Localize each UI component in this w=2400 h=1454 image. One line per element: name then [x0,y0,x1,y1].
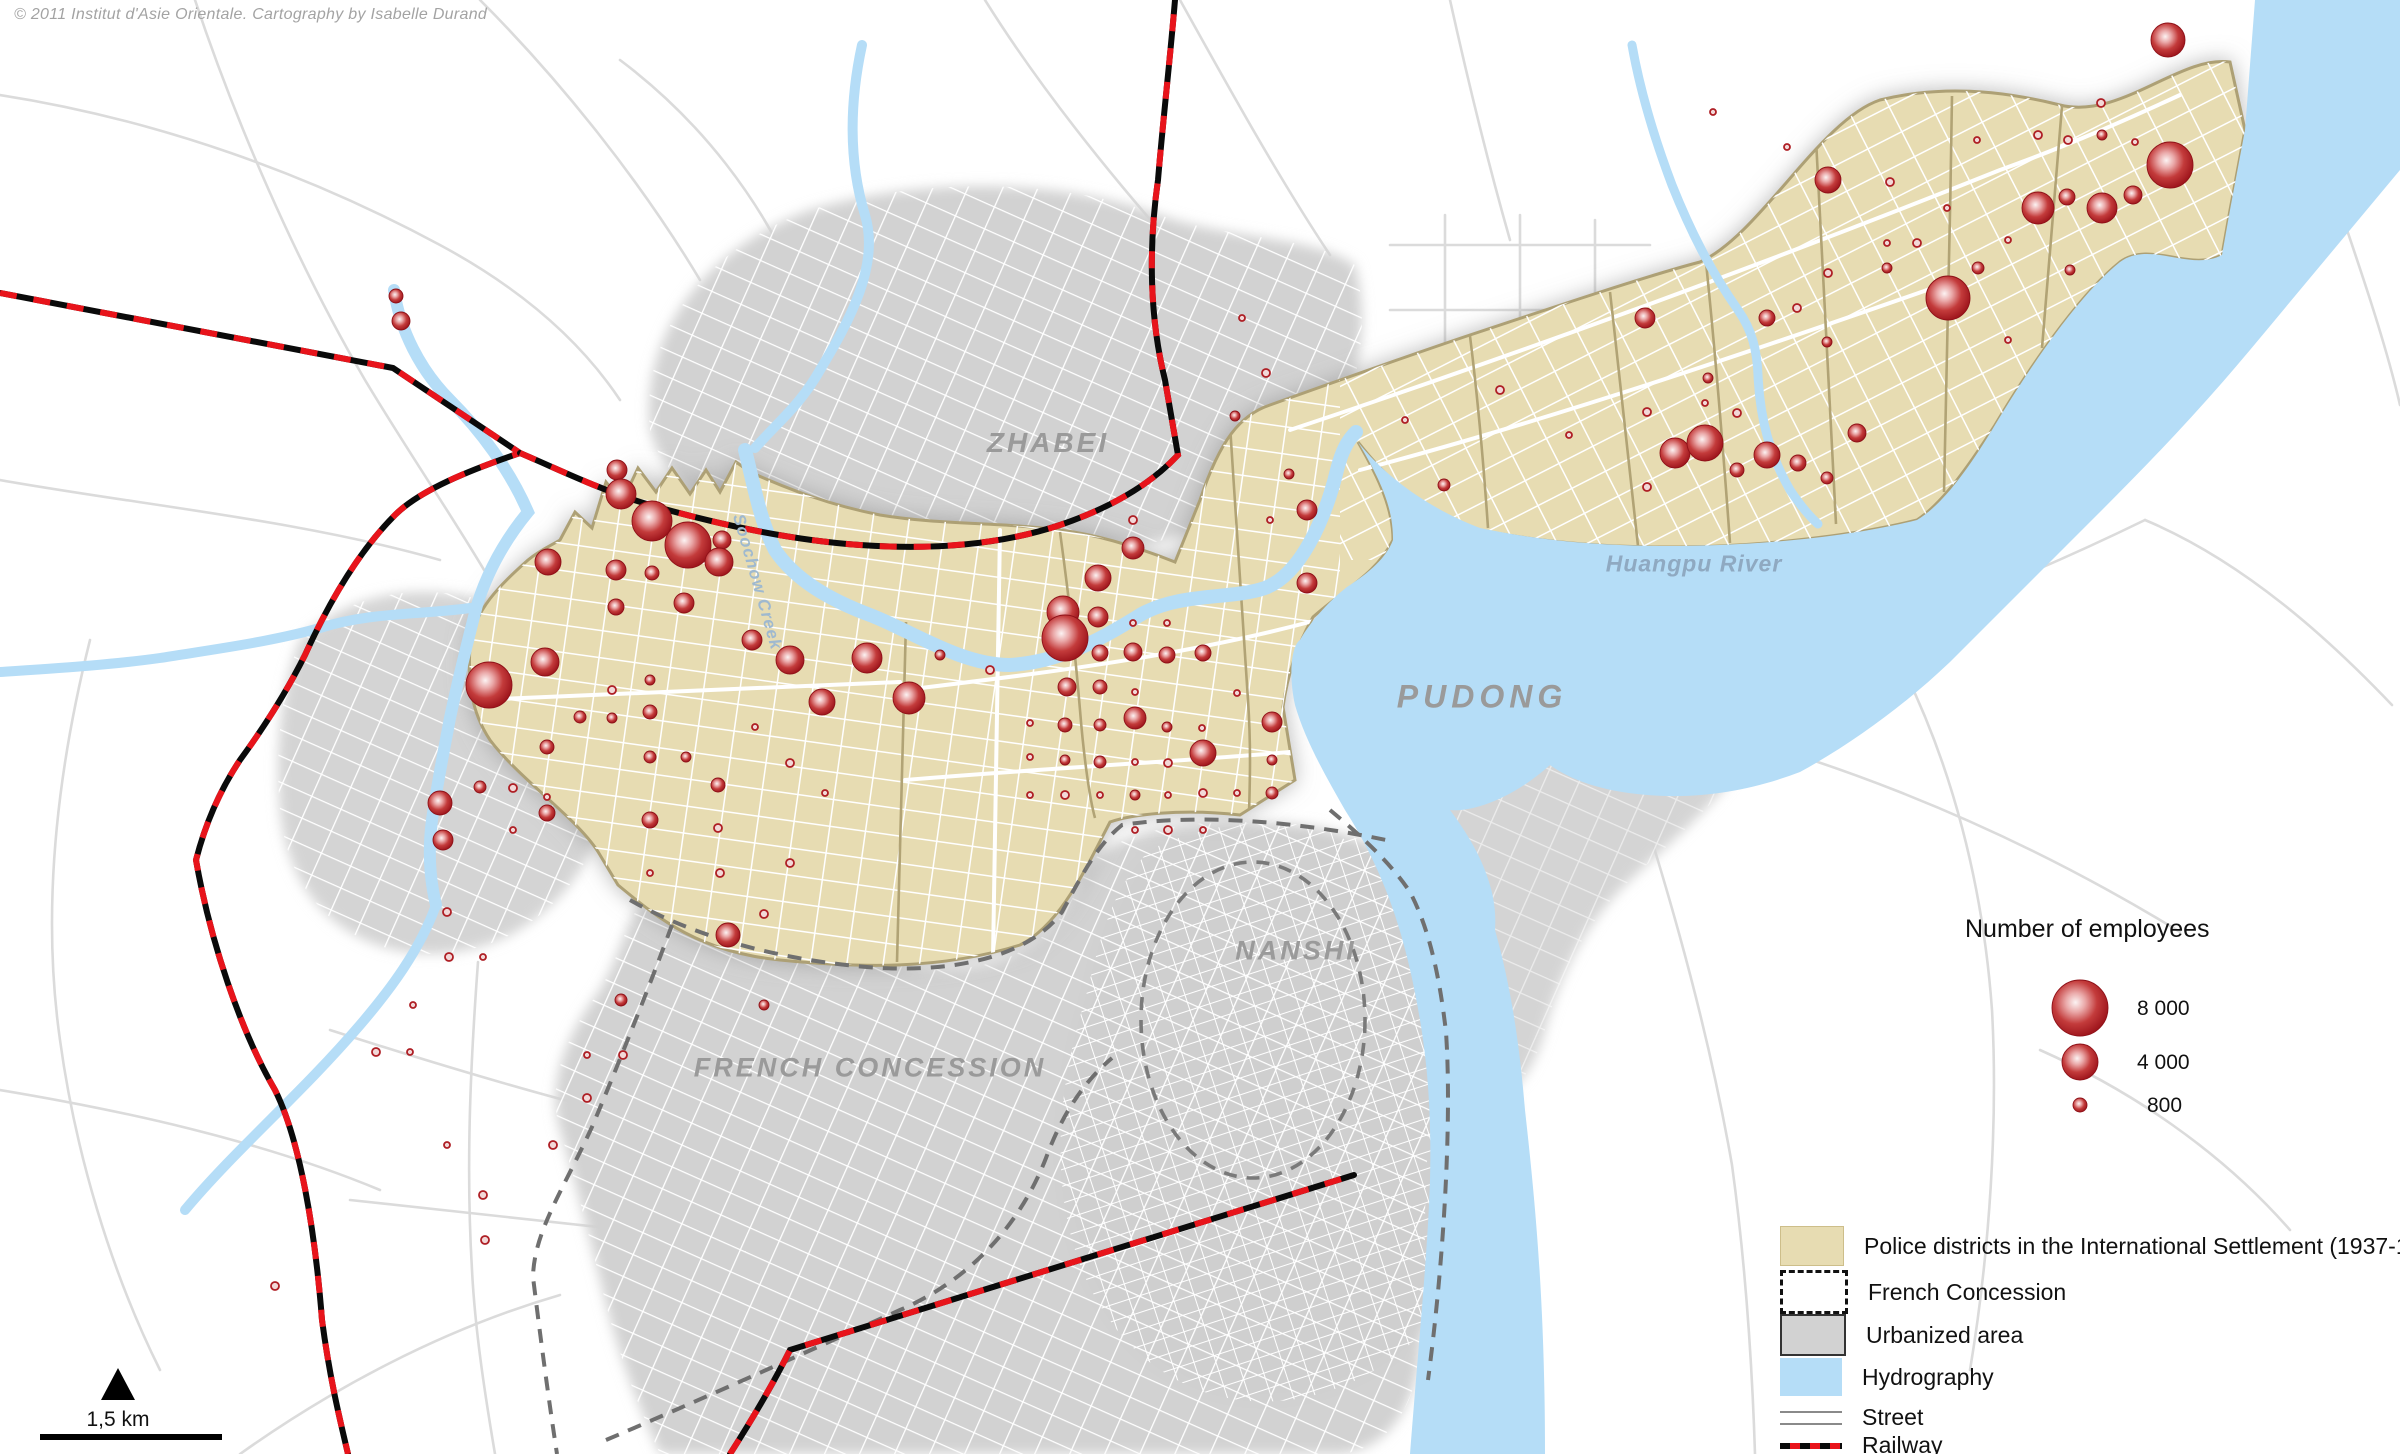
employee-circle [1848,424,1866,442]
size-legend-title: Number of employees [1965,915,2210,944]
employee-circle [271,1282,279,1290]
employee-circle [1703,373,1713,383]
employee-circle [444,1142,450,1148]
legend-label: Hydrography [1862,1364,1994,1391]
legend-label: Police districts in the International Se… [1864,1233,2400,1260]
employee-circle [705,548,733,576]
employee-circle [1199,789,1207,797]
employee-circle [509,784,517,792]
employee-circle [1884,240,1890,246]
label-pudong: PUDONG [1397,679,1567,716]
employee-circle [760,910,768,918]
employee-circle [1710,109,1716,115]
legend-item-settlement: Police districts in the International Se… [1780,1226,2400,1266]
employee-circle [1643,408,1651,416]
employee-circle [935,650,945,660]
employee-circle [1790,455,1806,471]
employee-circle [443,908,451,916]
employee-circle [1267,755,1277,765]
employee-circle [2132,139,2138,145]
employee-circle [1027,792,1033,798]
employee-circle [1092,645,1108,661]
legend-label: Railway [1862,1432,1943,1454]
employee-circle [1974,137,1980,143]
employee-circle [2097,130,2107,140]
employee-circle [1824,269,1832,277]
employee-circle [1230,411,1240,421]
employee-circle [608,599,624,615]
employee-circle [1297,573,1317,593]
street-swatch [1780,1411,1842,1425]
railway-swatch [1780,1443,1842,1449]
employee-circle [1754,442,1780,468]
employee-circle [1496,386,1504,394]
size-legend: Number of employees 8 000 4 000 800 [1965,915,2385,1145]
employee-circle [1094,756,1106,768]
employee-circle [1793,304,1801,312]
employee-circle [1702,400,1708,406]
scale-bar [40,1434,222,1440]
legend-item-french-concession: French Concession [1780,1270,2066,1314]
employee-circle [1944,205,1950,211]
legend-label: Street [1862,1404,1923,1431]
hydrography-swatch [1780,1358,1842,1396]
label-huangpu-river: Huangpu River [1606,551,1783,578]
employee-circle [584,1052,590,1058]
employee-circle [433,830,453,850]
employee-circle [607,460,627,480]
employee-circle [2065,265,2075,275]
employee-circle [535,549,561,575]
employee-circle [1200,827,1206,833]
employee-circle [1164,759,1172,767]
employee-circle [1687,425,1723,461]
employee-circle [606,479,636,509]
employee-circle [759,1000,769,1010]
employee-circle [809,689,835,715]
employee-circle [480,954,486,960]
employee-circle [1234,690,1240,696]
employee-circle [1199,725,1205,731]
employee-circle [510,827,516,833]
employee-circle [1130,620,1136,626]
employee-circle [372,1048,380,1056]
employee-circle [1058,678,1076,696]
employee-circle [583,1094,591,1102]
employee-circle [2124,186,2142,204]
employee-circle [1730,463,1744,477]
employee-circle [643,705,657,719]
employee-circle [642,812,658,828]
employee-circle [665,522,711,568]
employee-circle [1165,792,1171,798]
employee-circle [410,1002,416,1008]
employee-circle [716,869,724,877]
employee-circle [1088,607,1108,627]
employee-circle [479,1191,487,1199]
employee-circle [1093,680,1107,694]
employee-circle [1822,337,1832,347]
employee-circle [644,751,656,763]
employee-circle [714,824,722,832]
french-concession-swatch [1780,1270,1848,1314]
employee-circle [986,666,994,674]
legend-label: Urbanized area [1866,1322,2023,1349]
employee-circle [2147,142,2193,188]
employee-circle [549,1141,557,1149]
employee-circle [1097,792,1103,798]
employee-circle [1132,689,1138,695]
employee-circle [893,682,925,714]
employee-circle [1784,144,1790,150]
employee-circle [428,791,452,815]
label-zhabei: ZHABEI [987,427,1109,459]
employee-circle [1284,469,1294,479]
employee-circle [608,686,616,694]
employee-circle [481,1236,489,1244]
employee-circle [711,778,725,792]
employee-circle [2087,193,2117,223]
employee-circle [2022,192,2054,224]
employee-circle [1094,719,1106,731]
employee-circle [647,870,653,876]
employee-circle [1267,517,1273,523]
employee-circle [531,648,559,676]
employee-circle [1061,791,1069,799]
size-circle-4000 [2062,1044,2098,1080]
employee-circle [1566,432,1572,438]
copyright-note: © 2011 Institut d'Asie Orientale. Cartog… [14,6,487,24]
employee-circle [1164,620,1170,626]
employee-circle [742,630,762,650]
employee-circle [466,662,512,708]
legend-item-urbanized: Urbanized area [1780,1314,2023,1356]
employee-circle [1266,787,1278,799]
employee-circle [822,790,828,796]
employee-circle [445,953,453,961]
employee-circle [1027,754,1033,760]
employee-circle [1913,239,1921,247]
size-circle-8000 [2052,980,2108,1036]
employee-circle [606,560,626,580]
employee-circle [1130,790,1140,800]
employee-circle [1132,827,1138,833]
employee-circle [1262,712,1282,732]
employee-circle [852,643,882,673]
employee-circle [574,711,586,723]
employee-circle [713,531,731,549]
employee-circle [1124,707,1146,729]
employee-circle [1438,479,1450,491]
employee-circle [392,312,410,330]
employee-circle [389,289,403,303]
size-circle-800 [2073,1098,2087,1112]
employee-circle [786,759,794,767]
employee-circle [407,1049,413,1055]
employee-circle [1402,417,1408,423]
employee-circle [2064,136,2072,144]
employee-circle [615,994,627,1006]
employee-circle [716,923,740,947]
employee-circle [681,752,691,762]
employee-circle [1164,826,1172,834]
employee-circle [1882,263,1892,273]
employee-circle [632,501,672,541]
size-value-8000: 8 000 [2137,997,2190,1021]
employee-circle [1190,740,1216,766]
employee-circle [1042,615,1088,661]
employee-circle [540,740,554,754]
employee-circle [1635,308,1655,328]
employee-circle [2151,23,2185,57]
employee-circle [1821,472,1833,484]
employee-circle [1159,647,1175,663]
employee-circle [474,781,486,793]
size-value-800: 800 [2147,1094,2182,1118]
employee-circle [2005,337,2011,343]
label-french-concession: FRENCH CONCESSION [694,1053,1047,1084]
employee-circle [2005,237,2011,243]
employee-circle [645,566,659,580]
employee-circle [2097,99,2105,107]
north-arrow-icon [101,1368,135,1400]
employee-circle [674,593,694,613]
employee-circle [1660,438,1690,468]
employee-circle [1162,722,1172,732]
employee-circle [1239,315,1245,321]
employee-circle [544,794,550,800]
employee-circle [1058,718,1072,732]
legend-item-hydrography: Hydrography [1780,1358,1994,1396]
legend-item-railway: Railway [1780,1432,1943,1454]
employee-circle [1733,409,1741,417]
label-nanshi: NANSHI [1235,936,1357,967]
employee-circle [1886,178,1894,186]
employee-circle [786,859,794,867]
employee-circle [1815,167,1841,193]
employee-circle [1297,500,1317,520]
employee-circle [1972,262,1984,274]
employee-circle [752,724,758,730]
employee-circle [1085,565,1111,591]
employee-circle [1124,643,1142,661]
employee-circle [1234,790,1240,796]
employee-circle [645,675,655,685]
employee-circle [1132,759,1138,765]
employee-circle [776,646,804,674]
legend-label: French Concession [1868,1279,2066,1306]
map-stage: © 2011 Institut d'Asie Orientale. Cartog… [0,0,2400,1454]
employee-circle [1926,276,1970,320]
employee-circle [2034,131,2042,139]
employee-circle [619,1051,627,1059]
size-value-4000: 4 000 [2137,1051,2190,1075]
employee-circle [1759,310,1775,326]
employee-circle [1122,537,1144,559]
employee-circle [539,805,555,821]
employee-circle [607,713,617,723]
employee-circle [1060,755,1070,765]
employee-circle [1027,720,1033,726]
employee-circle [2059,189,2075,205]
employee-circle [1643,483,1651,491]
legend-item-street: Street [1780,1404,1923,1431]
employee-circle [1262,369,1270,377]
scale-label: 1,5 km [86,1408,149,1432]
employee-circle [1129,516,1137,524]
urbanized-swatch [1780,1314,1846,1356]
employee-circle [1195,645,1211,661]
settlement-swatch [1780,1226,1844,1266]
